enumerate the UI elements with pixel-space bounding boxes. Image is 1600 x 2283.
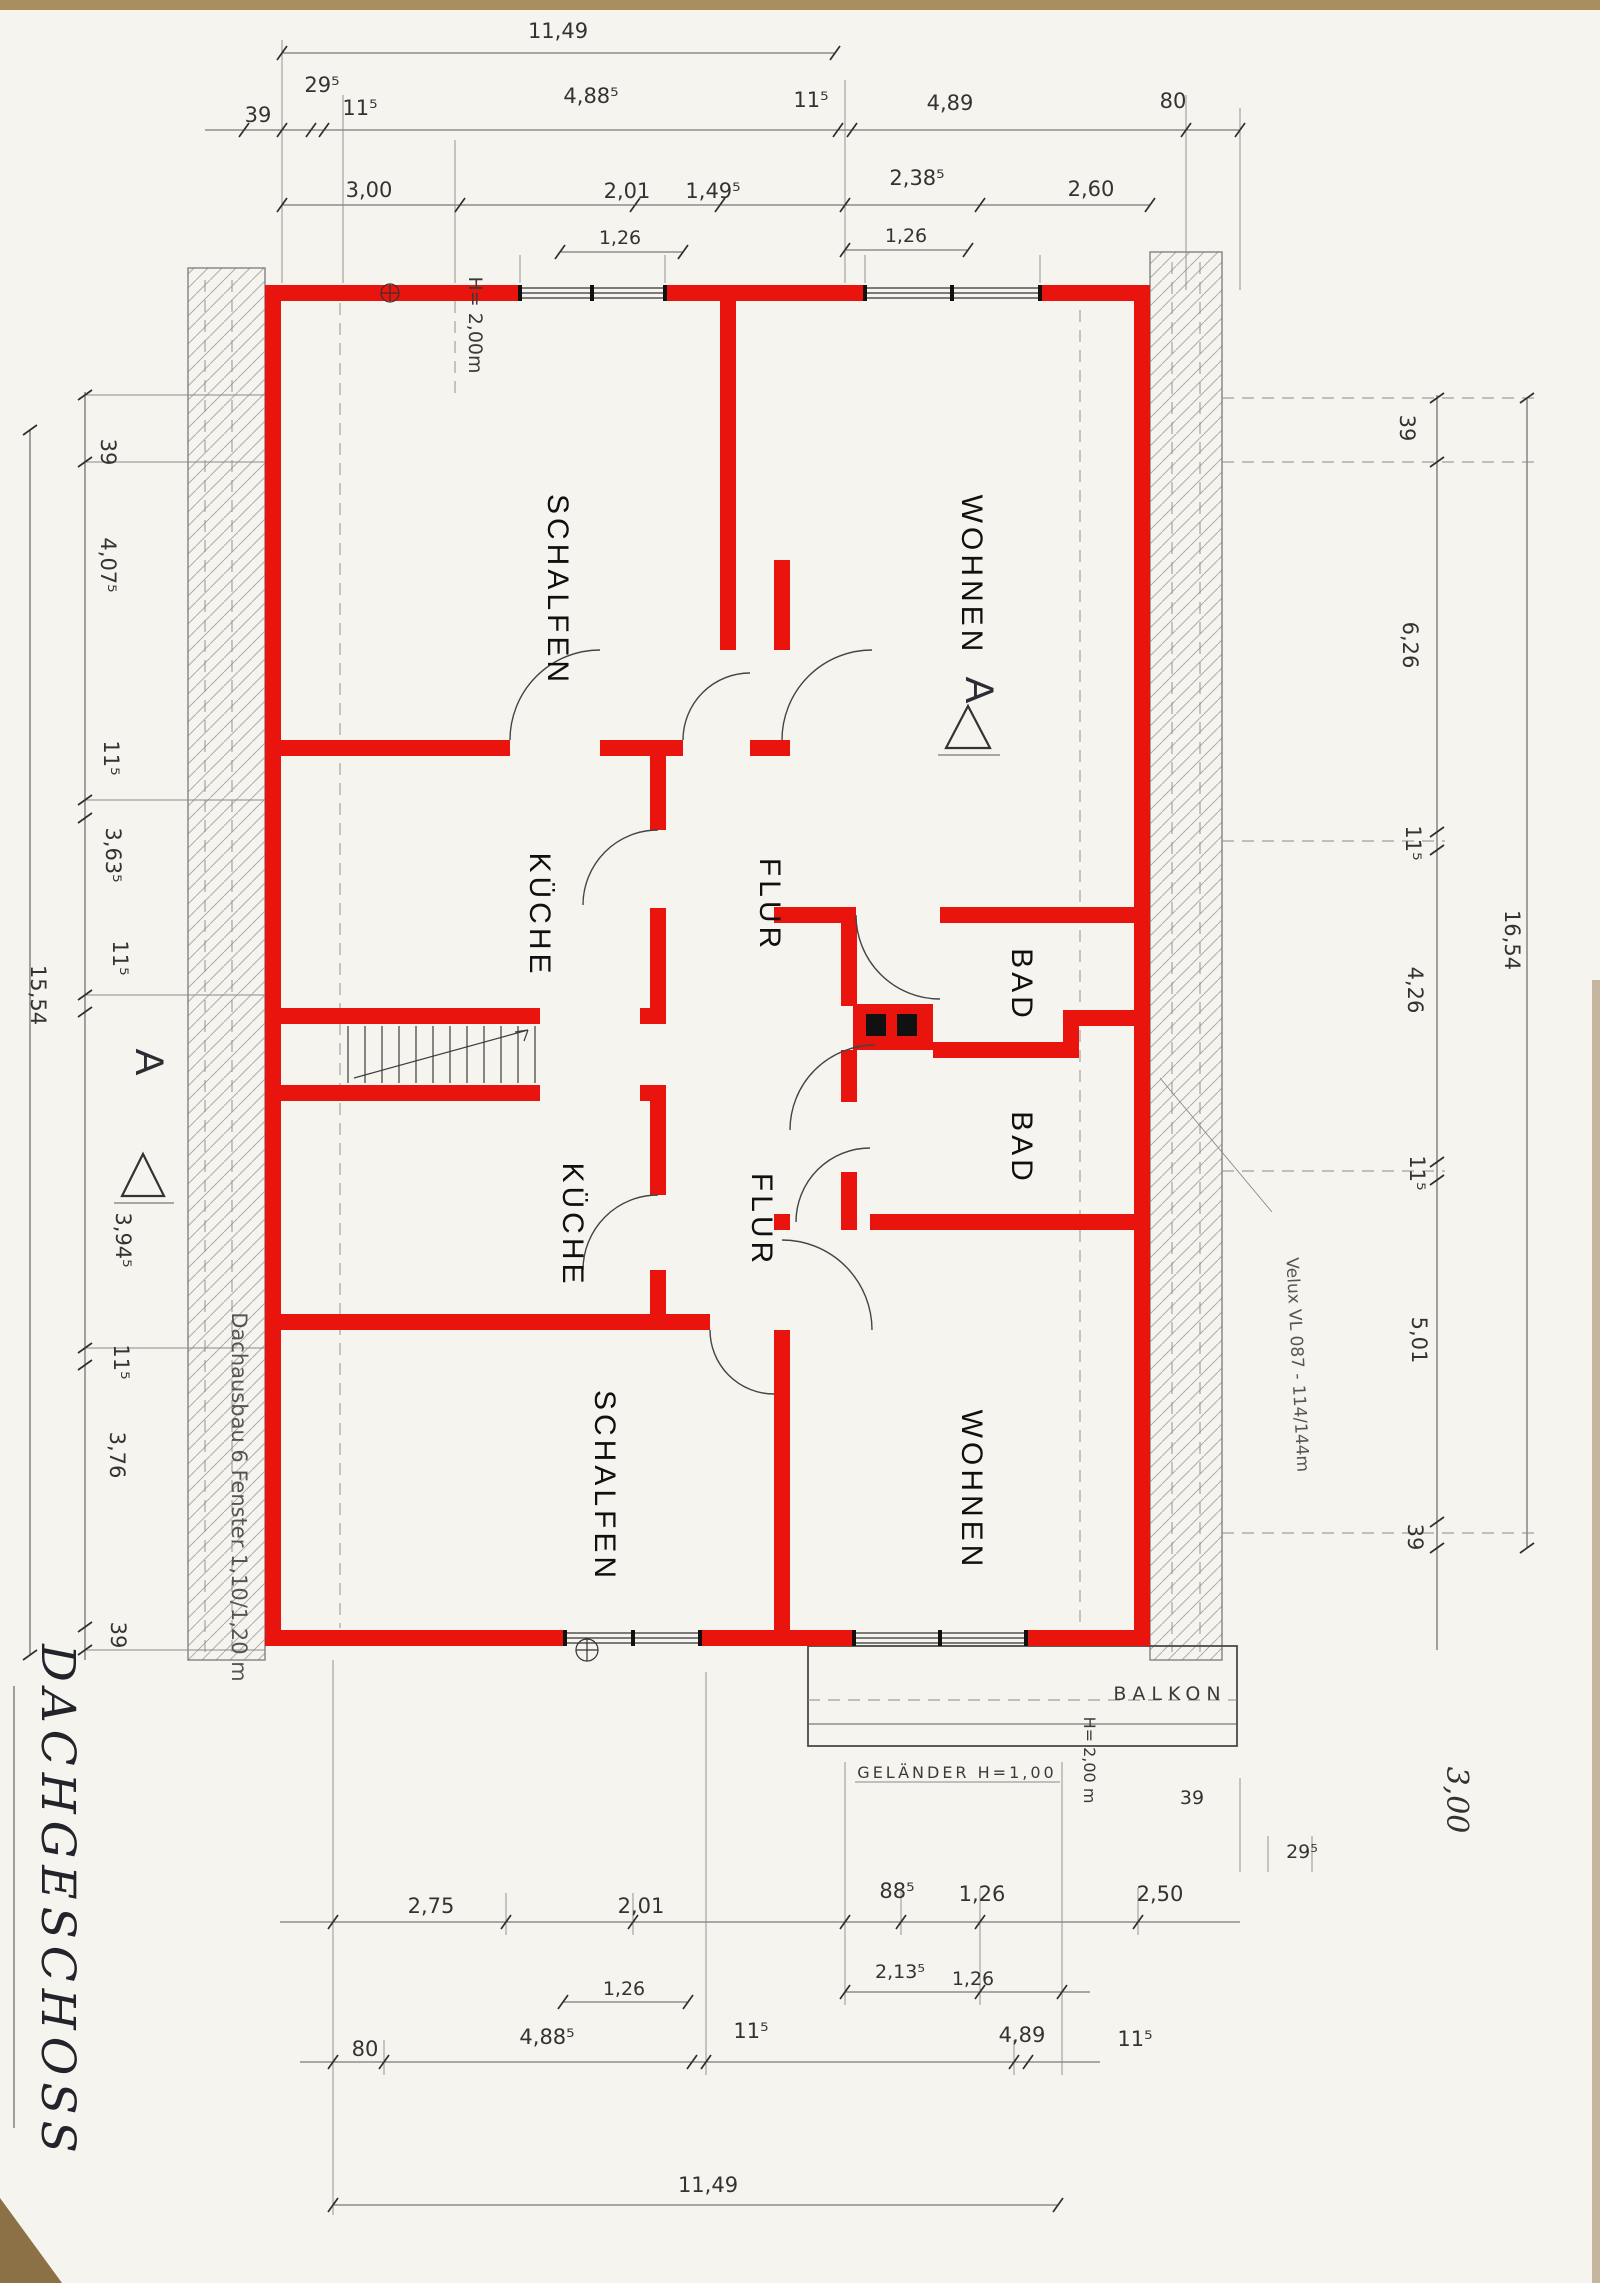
- roof-hatch-right: [1150, 252, 1222, 1660]
- dim-right: 39: [1403, 1524, 1427, 1551]
- dim-right: 11⁵: [1401, 825, 1425, 860]
- roof-hatch-left: [188, 268, 265, 1660]
- room-label-flur-top: FLUR: [753, 858, 786, 952]
- room-label-kueche-top: KÜCHE: [523, 852, 556, 977]
- dim-top: 29⁵: [304, 73, 339, 97]
- dim-right: 5,01: [1407, 1317, 1431, 1364]
- room-label-flur-bottom: FLUR: [745, 1173, 778, 1267]
- dim-bottom: 1,26: [959, 1882, 1006, 1906]
- dim-bottom: 11⁵: [733, 2019, 768, 2043]
- dim-top: 2,60: [1068, 177, 1115, 201]
- dim-top: 2,01: [604, 179, 651, 203]
- dim-left: 39: [96, 439, 120, 466]
- dim-bottom: 1,26: [952, 1968, 994, 1990]
- dim-bottom: 11⁵: [1117, 2027, 1152, 2051]
- dim-bottom: 80: [352, 2037, 379, 2061]
- dim-top: 4,89: [927, 91, 974, 115]
- dim-right: 6,26: [1398, 622, 1422, 669]
- dim-top: 11⁵: [342, 96, 377, 120]
- chimney: [853, 1004, 933, 1050]
- dim-left: 11⁵: [99, 740, 123, 775]
- section-letter-right: A: [957, 677, 1001, 704]
- room-label-kueche-bottom: KÜCHE: [556, 1162, 589, 1287]
- dim-left: 11⁵: [108, 940, 132, 975]
- dim-top: 39: [245, 103, 272, 127]
- dim-top: 3,00: [346, 178, 393, 202]
- room-label-wohnen-bottom: WOHNEN: [955, 1410, 988, 1571]
- room-label-schlafen-bottom: SCHALFEN: [588, 1390, 621, 1582]
- dim-bottom: 2,50: [1137, 1882, 1184, 1906]
- height-note-bottom: H= 2,00 m: [1080, 1717, 1099, 1804]
- floor-title: DACHGESCHOSS: [30, 1643, 85, 2160]
- dim-bottom: 4,89: [999, 2023, 1046, 2047]
- railing-label: GELÄNDER H=1,00: [857, 1763, 1056, 1782]
- dim-right: 11⁵: [1405, 1155, 1429, 1190]
- height-note-top: H= 2,00m: [464, 276, 486, 373]
- dim-left: 39: [106, 1622, 130, 1649]
- dim-right: 39: [1395, 415, 1419, 442]
- dim-top: 1,26: [885, 225, 927, 247]
- dim-bottom: 2,13⁵: [875, 1961, 925, 1983]
- dim-top: 4,88⁵: [563, 84, 618, 108]
- dim-bottom: 39: [1180, 1787, 1204, 1809]
- scan-edge-top: [0, 0, 1600, 10]
- dim-top: 1,49⁵: [685, 179, 740, 203]
- dim-top: 80: [1160, 89, 1187, 113]
- dim-left: 3,76: [105, 1432, 129, 1479]
- dim-bottom: 88⁵: [879, 1879, 914, 1903]
- room-label-schlafen-top: SCHALFEN: [541, 494, 574, 686]
- dim-top: 2,38⁵: [889, 166, 944, 190]
- dim-bottom-overall: 11,49: [678, 2173, 738, 2197]
- dim-left: 4,07⁵: [96, 537, 120, 592]
- dim-script-300: 3,00: [1439, 1767, 1474, 1834]
- dim-top-overall: 11,49: [528, 19, 588, 43]
- dim-top: 11⁵: [793, 88, 828, 112]
- balcony-label: BALKON: [1113, 1683, 1226, 1705]
- roof-window-note: Dachausbau 6 Fenster 1,10/1,20 m: [227, 1312, 251, 1682]
- dim-left: 3,94⁵: [111, 1212, 135, 1267]
- dim-top: 1,26: [599, 227, 641, 249]
- room-label-bad-bottom: BAD: [1005, 1111, 1038, 1185]
- dim-bottom: 1,26: [603, 1978, 645, 2000]
- room-label-wohnen-top: WOHNEN: [955, 495, 988, 656]
- dim-left-overall: 15,54: [26, 965, 50, 1025]
- dim-left: 3,63⁵: [101, 827, 125, 882]
- dim-right-overall: 16,54: [1500, 910, 1524, 970]
- scan-edge-right: [1592, 980, 1600, 2283]
- dim-right: 4,26: [1403, 967, 1427, 1014]
- section-letter-left: A: [127, 1049, 171, 1076]
- dim-bottom: 4,88⁵: [519, 2025, 574, 2049]
- dim-bottom: 2,75: [408, 1894, 455, 1918]
- dim-bottom: 29⁵: [1286, 1841, 1318, 1863]
- dim-left: 11⁵: [109, 1344, 133, 1379]
- scanned-floor-plan-page: A A SCHALFEN WOHNEN KÜCHE FLUR BAD BAD K…: [0, 0, 1600, 2283]
- room-label-bad-top: BAD: [1005, 948, 1038, 1022]
- dim-bottom: 2,01: [618, 1894, 665, 1918]
